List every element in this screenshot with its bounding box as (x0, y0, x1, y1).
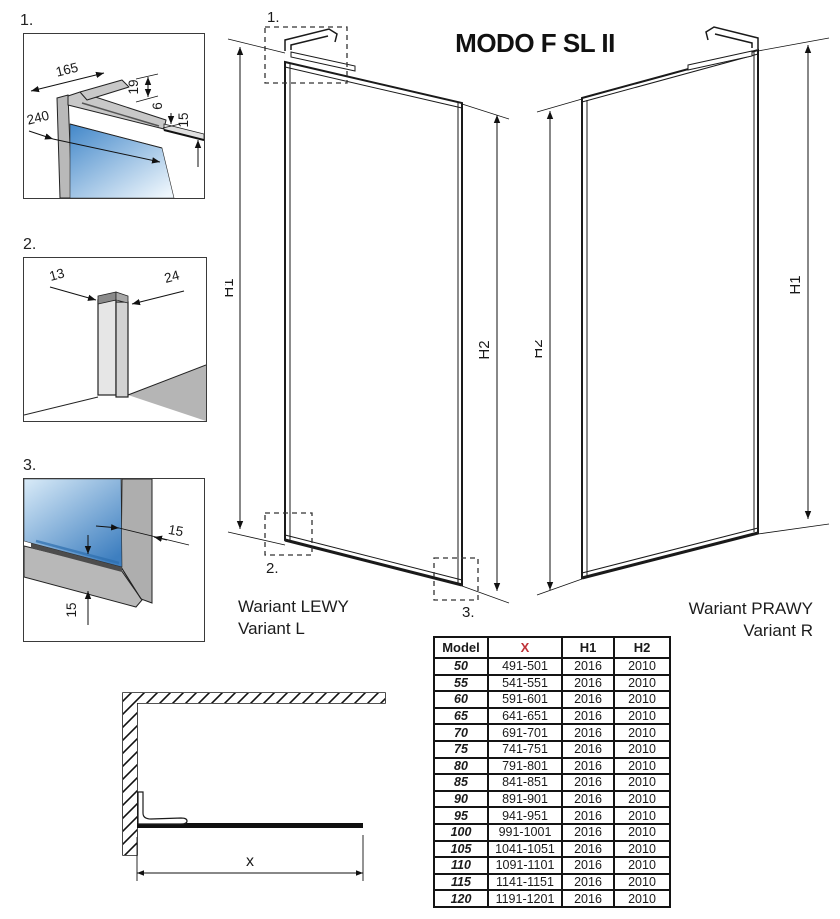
detail-2-drawing: 13 24 (24, 258, 206, 421)
model-cell: 90 (434, 791, 488, 808)
x-dim-label: x (246, 853, 254, 870)
dim-x: x (137, 835, 363, 881)
size-table: Model X H1 H2 50491-5012016201055541-551… (433, 636, 671, 908)
model-cell: 100 (434, 824, 488, 841)
header-x: X (488, 637, 562, 658)
dim-h2-left: H2 (462, 104, 509, 603)
model-cell: 85 (434, 774, 488, 791)
model-cell: 110 (434, 857, 488, 874)
detail-3-box: 15 15 (23, 478, 205, 642)
table-row: 95941-95120162010 (434, 807, 670, 824)
value-cell: 2016 (562, 824, 614, 841)
value-cell: 1091-1101 (488, 857, 562, 874)
table-row: 50491-50120162010 (434, 658, 670, 675)
size-table-head: Model X H1 H2 (434, 637, 670, 658)
value-cell: 2010 (614, 675, 670, 692)
value-cell: 2016 (562, 708, 614, 725)
value-cell: 2016 (562, 691, 614, 708)
value-cell: 2010 (614, 890, 670, 907)
h2-label: H2 (476, 340, 493, 359)
detail-3-drawing: 15 15 (24, 479, 204, 641)
dim-h2-right: H2 (535, 99, 582, 595)
value-cell: 1041-1051 (488, 841, 562, 858)
h2-label: H2 (535, 339, 546, 358)
dim-label-15-edge: 15 (176, 112, 191, 127)
table-row: 1151141-115120162010 (434, 874, 670, 891)
plan-view-drawing: x (100, 685, 400, 919)
model-cell: 60 (434, 691, 488, 708)
caption-variant-l: Variant L (238, 618, 349, 640)
value-cell: 2010 (614, 874, 670, 891)
value-cell: 2010 (614, 758, 670, 775)
left-variant-drawing: 1. 2. 3. H1 H2 (225, 5, 520, 650)
value-cell: 941-951 (488, 807, 562, 824)
table-row: 1101091-110120162010 (434, 857, 670, 874)
value-cell: 2010 (614, 741, 670, 758)
value-cell: 591-601 (488, 691, 562, 708)
dim-label-240: 240 (25, 108, 50, 128)
value-cell: 2016 (562, 758, 614, 775)
value-cell: 2016 (562, 774, 614, 791)
table-row: 100991-100120162010 (434, 824, 670, 841)
wall-bracket-plan (138, 792, 187, 824)
wall-bracket (285, 29, 337, 51)
dim-label-15-frame: 15 (167, 522, 184, 539)
table-row: 1201191-120120162010 (434, 890, 670, 907)
profile-front-face (98, 300, 116, 395)
value-cell: 2010 (614, 857, 670, 874)
callout-3-label: 3. (462, 604, 475, 621)
value-cell: 2016 (562, 741, 614, 758)
floor-line (24, 397, 98, 415)
table-row: 75741-75120162010 (434, 741, 670, 758)
table-row: 80791-80120162010 (434, 758, 670, 775)
wall-bracket (706, 27, 758, 49)
dim-label-24: 24 (163, 267, 182, 286)
glass-panel-outline (285, 62, 462, 585)
table-row: 70691-70120162010 (434, 724, 670, 741)
dim-h1-right: H1 (758, 38, 829, 534)
value-cell: 2016 (562, 724, 614, 741)
table-row: 65641-65120162010 (434, 708, 670, 725)
value-cell: 641-651 (488, 708, 562, 725)
value-cell: 2010 (614, 824, 670, 841)
value-cell: 841-851 (488, 774, 562, 791)
value-cell: 2010 (614, 724, 670, 741)
h1-label: H1 (787, 275, 804, 294)
bracket-short-arm (80, 80, 129, 100)
dim-h1-left: H1 (225, 39, 285, 545)
value-cell: 2016 (562, 890, 614, 907)
detail-1-box: 165 19 240 6 15 (23, 33, 205, 199)
caption-wariant-prawy: Wariant PRAWY (637, 598, 813, 620)
dim-label-6: 6 (150, 102, 165, 110)
value-cell: 2010 (614, 658, 670, 675)
detail-1-drawing: 165 19 240 6 15 (24, 34, 204, 198)
detail-1-label: 1. (20, 12, 33, 30)
table-row: 1051041-105120162010 (434, 841, 670, 858)
value-cell: 2010 (614, 708, 670, 725)
value-cell: 2016 (562, 658, 614, 675)
size-table-body: 50491-5012016201055541-5512016201060591-… (434, 658, 670, 907)
value-cell: 891-901 (488, 791, 562, 808)
model-cell: 115 (434, 874, 488, 891)
header-model: Model (434, 637, 488, 658)
dim-label-19: 19 (126, 79, 141, 94)
profile-cap-right (116, 292, 128, 303)
header-h2: H2 (614, 637, 670, 658)
value-cell: 741-751 (488, 741, 562, 758)
value-cell: 2010 (614, 807, 670, 824)
model-cell: 95 (434, 807, 488, 824)
value-cell: 1191-1201 (488, 890, 562, 907)
model-cell: 80 (434, 758, 488, 775)
h1-label: H1 (225, 278, 237, 297)
model-cell: 120 (434, 890, 488, 907)
table-row: 90891-90120162010 (434, 791, 670, 808)
glass-panel-outline (582, 50, 758, 578)
value-cell: 2016 (562, 807, 614, 824)
header-h1: H1 (562, 637, 614, 658)
value-cell: 691-701 (488, 724, 562, 741)
model-cell: 65 (434, 708, 488, 725)
table-row: 55541-55120162010 (434, 675, 670, 692)
callout-1-label: 1. (267, 9, 280, 26)
table-header-row: Model X H1 H2 (434, 637, 670, 658)
detail-3-label: 3. (23, 457, 36, 475)
value-cell: 2016 (562, 791, 614, 808)
value-cell: 2010 (614, 691, 670, 708)
right-variant-drawing: H2 H1 (535, 5, 840, 650)
table-row: 60591-60120162010 (434, 691, 670, 708)
value-cell: 791-801 (488, 758, 562, 775)
value-cell: 491-501 (488, 658, 562, 675)
value-cell: 541-551 (488, 675, 562, 692)
table-row: 85841-85120162010 (434, 774, 670, 791)
detail-2-box: 13 24 (23, 257, 207, 422)
value-cell: 2016 (562, 857, 614, 874)
model-cell: 70 (434, 724, 488, 741)
detail-2-label: 2. (23, 236, 36, 254)
dim-label-13: 13 (48, 265, 66, 283)
floor-shadow (128, 365, 206, 421)
wall-outline (123, 693, 385, 855)
value-cell: 2010 (614, 791, 670, 808)
glass-pane (70, 124, 174, 198)
value-cell: 2016 (562, 675, 614, 692)
model-cell: 75 (434, 741, 488, 758)
caption-wariant-lewy: Wariant LEWY (238, 596, 349, 618)
value-cell: 2010 (614, 774, 670, 791)
model-cell: 55 (434, 675, 488, 692)
model-cell: 50 (434, 658, 488, 675)
value-cell: 991-1001 (488, 824, 562, 841)
diagram-canvas: MODO F SL II 1. 165 19 240 (0, 0, 840, 919)
value-cell: 2016 (562, 874, 614, 891)
value-cell: 1141-1151 (488, 874, 562, 891)
model-cell: 105 (434, 841, 488, 858)
callout-2-label: 2. (266, 560, 279, 577)
value-cell: 2010 (614, 841, 670, 858)
dim-label-15-inset: 15 (64, 602, 79, 617)
value-cell: 2016 (562, 841, 614, 858)
left-variant-caption: Wariant LEWY Variant L (238, 596, 349, 640)
profile-side-face (116, 302, 128, 397)
wall-hatch (123, 693, 385, 855)
dim-label-165: 165 (54, 60, 79, 80)
